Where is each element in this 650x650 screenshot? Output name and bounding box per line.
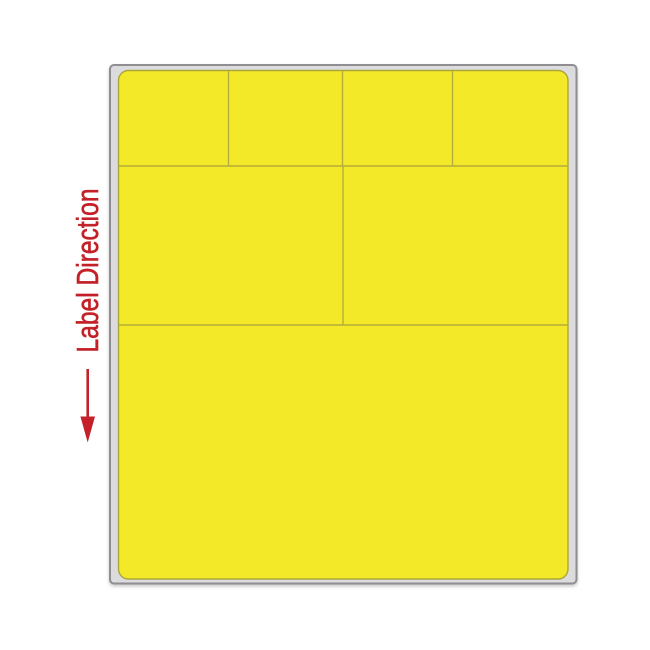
- svg-text:Label Direction: Label Direction: [70, 189, 105, 353]
